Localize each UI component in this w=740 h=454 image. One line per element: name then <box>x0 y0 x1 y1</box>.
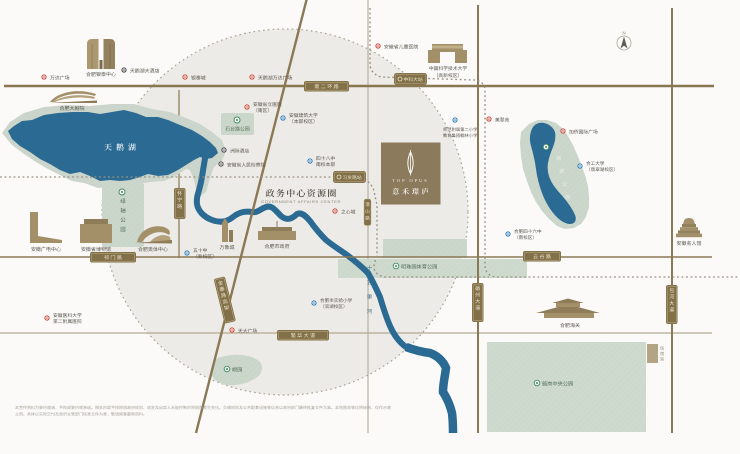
svg-text:TOP OPUS: TOP OPUS <box>392 178 428 183</box>
svg-text:N: N <box>622 31 625 36</box>
svg-text:GOVERNMENT AFFAIRS CENTER: GOVERNMENT AFFAIRS CENTER <box>261 199 341 204</box>
